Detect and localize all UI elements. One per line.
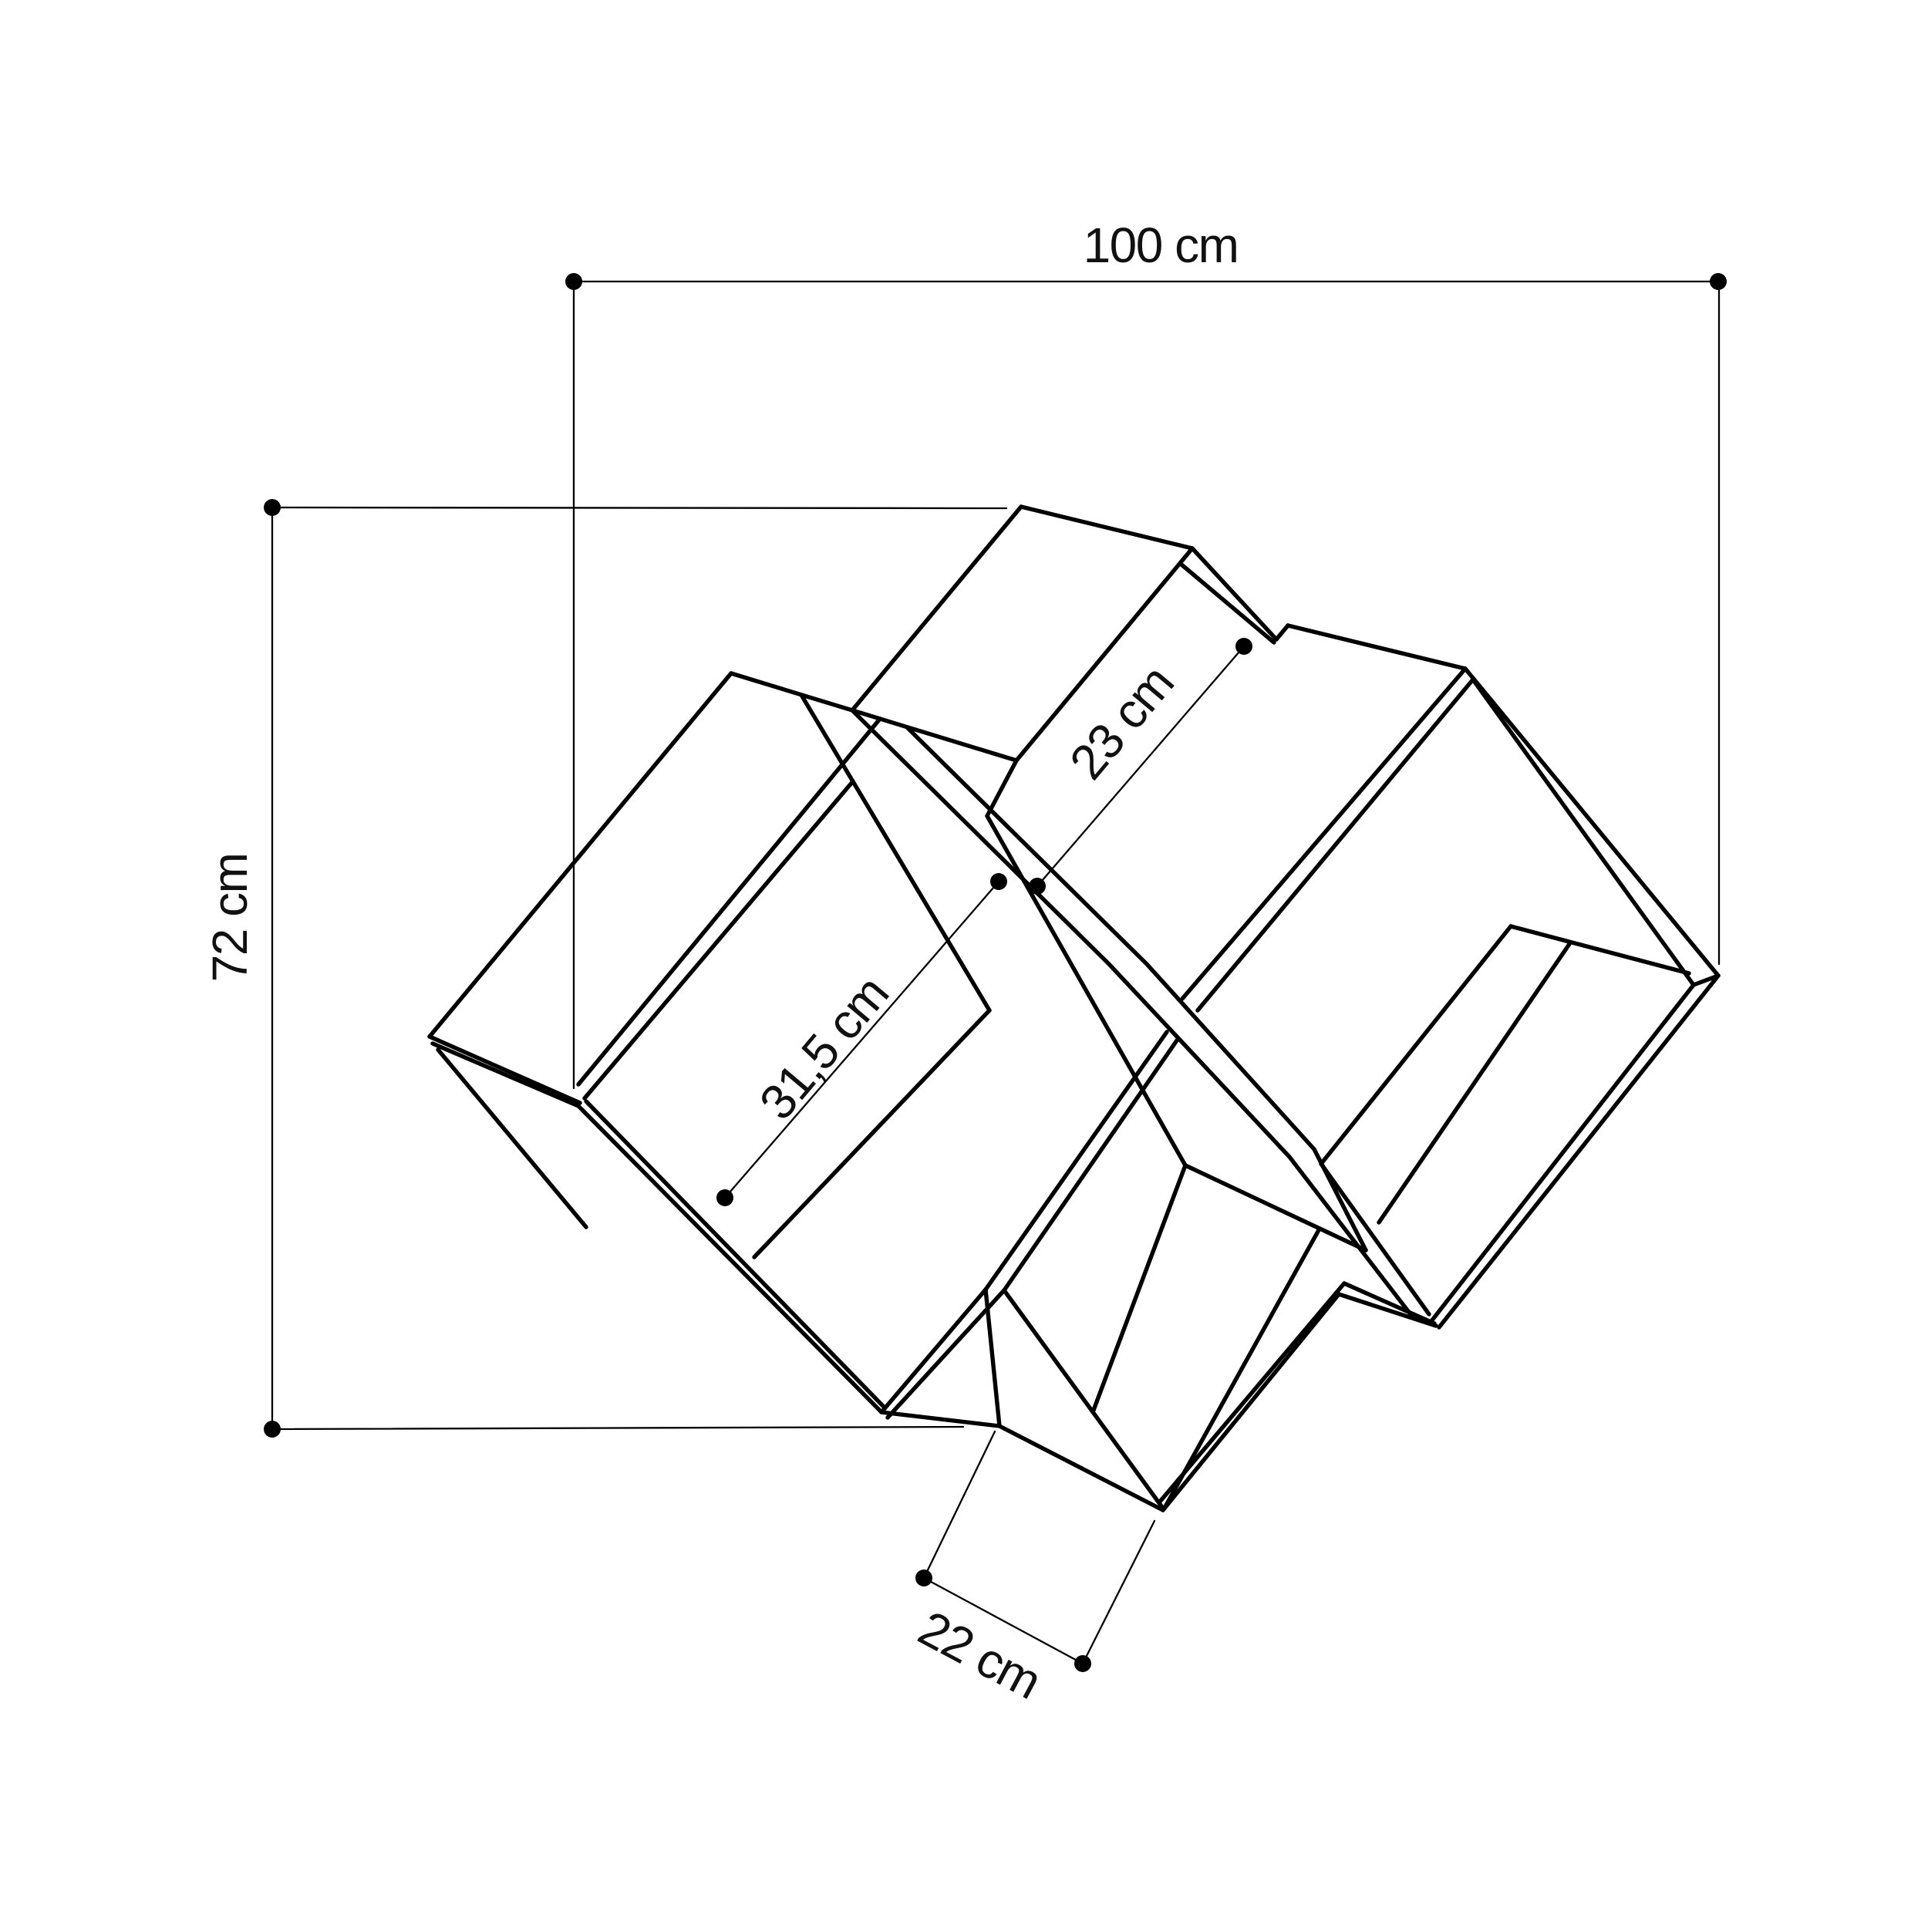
svg-text:100 cm: 100 cm [1084,217,1239,273]
svg-text:72 cm: 72 cm [202,854,258,983]
